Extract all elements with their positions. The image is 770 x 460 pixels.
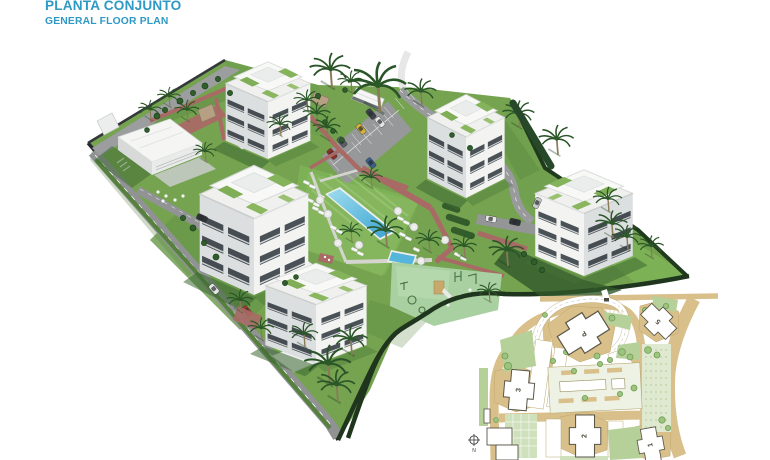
svg-text:N: N — [472, 448, 476, 454]
svg-text:3: 3 — [515, 388, 522, 393]
svg-text:2: 2 — [582, 434, 589, 438]
